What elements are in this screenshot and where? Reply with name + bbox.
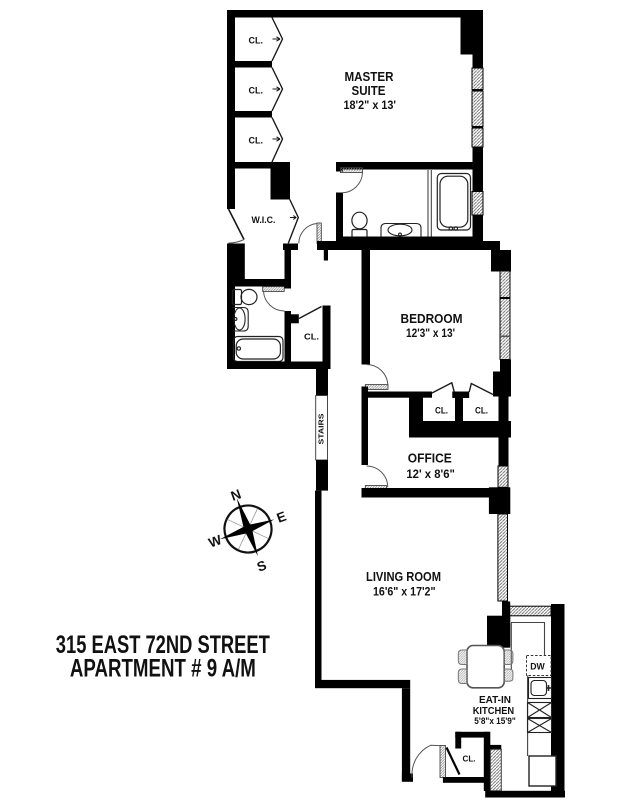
svg-text:18'2" x 13': 18'2" x 13' [344, 98, 397, 112]
svg-text:BEDROOM: BEDROOM [401, 312, 463, 326]
svg-text:SUITE: SUITE [352, 84, 386, 98]
svg-text:CL.: CL. [249, 36, 264, 46]
svg-text:CL.: CL. [463, 754, 476, 764]
svg-text:MASTER: MASTER [345, 70, 394, 84]
svg-text:APARTMENT # 9 A/M: APARTMENT # 9 A/M [70, 655, 256, 683]
svg-text:CL.: CL. [249, 86, 264, 96]
svg-text:EAT-IN: EAT-IN [479, 695, 511, 706]
svg-text:STAIRS: STAIRS [319, 413, 326, 444]
svg-text:12'3" x 13': 12'3" x 13' [406, 326, 455, 340]
svg-text:LIVING ROOM: LIVING ROOM [366, 570, 441, 584]
svg-text:5'8"x 15'9": 5'8"x 15'9" [474, 716, 516, 726]
svg-text:DW: DW [530, 661, 545, 671]
svg-text:CL.: CL. [304, 332, 319, 342]
svg-text:W.I.C.: W.I.C. [252, 215, 276, 225]
svg-text:CL.: CL. [249, 136, 264, 146]
svg-text:CL.: CL. [435, 406, 448, 417]
svg-text:12' x 8'6": 12' x 8'6" [406, 467, 455, 481]
svg-text:16'6" x 17'2": 16'6" x 17'2" [373, 585, 436, 599]
svg-text:CL.: CL. [475, 406, 488, 417]
svg-text:OFFICE: OFFICE [408, 451, 452, 465]
